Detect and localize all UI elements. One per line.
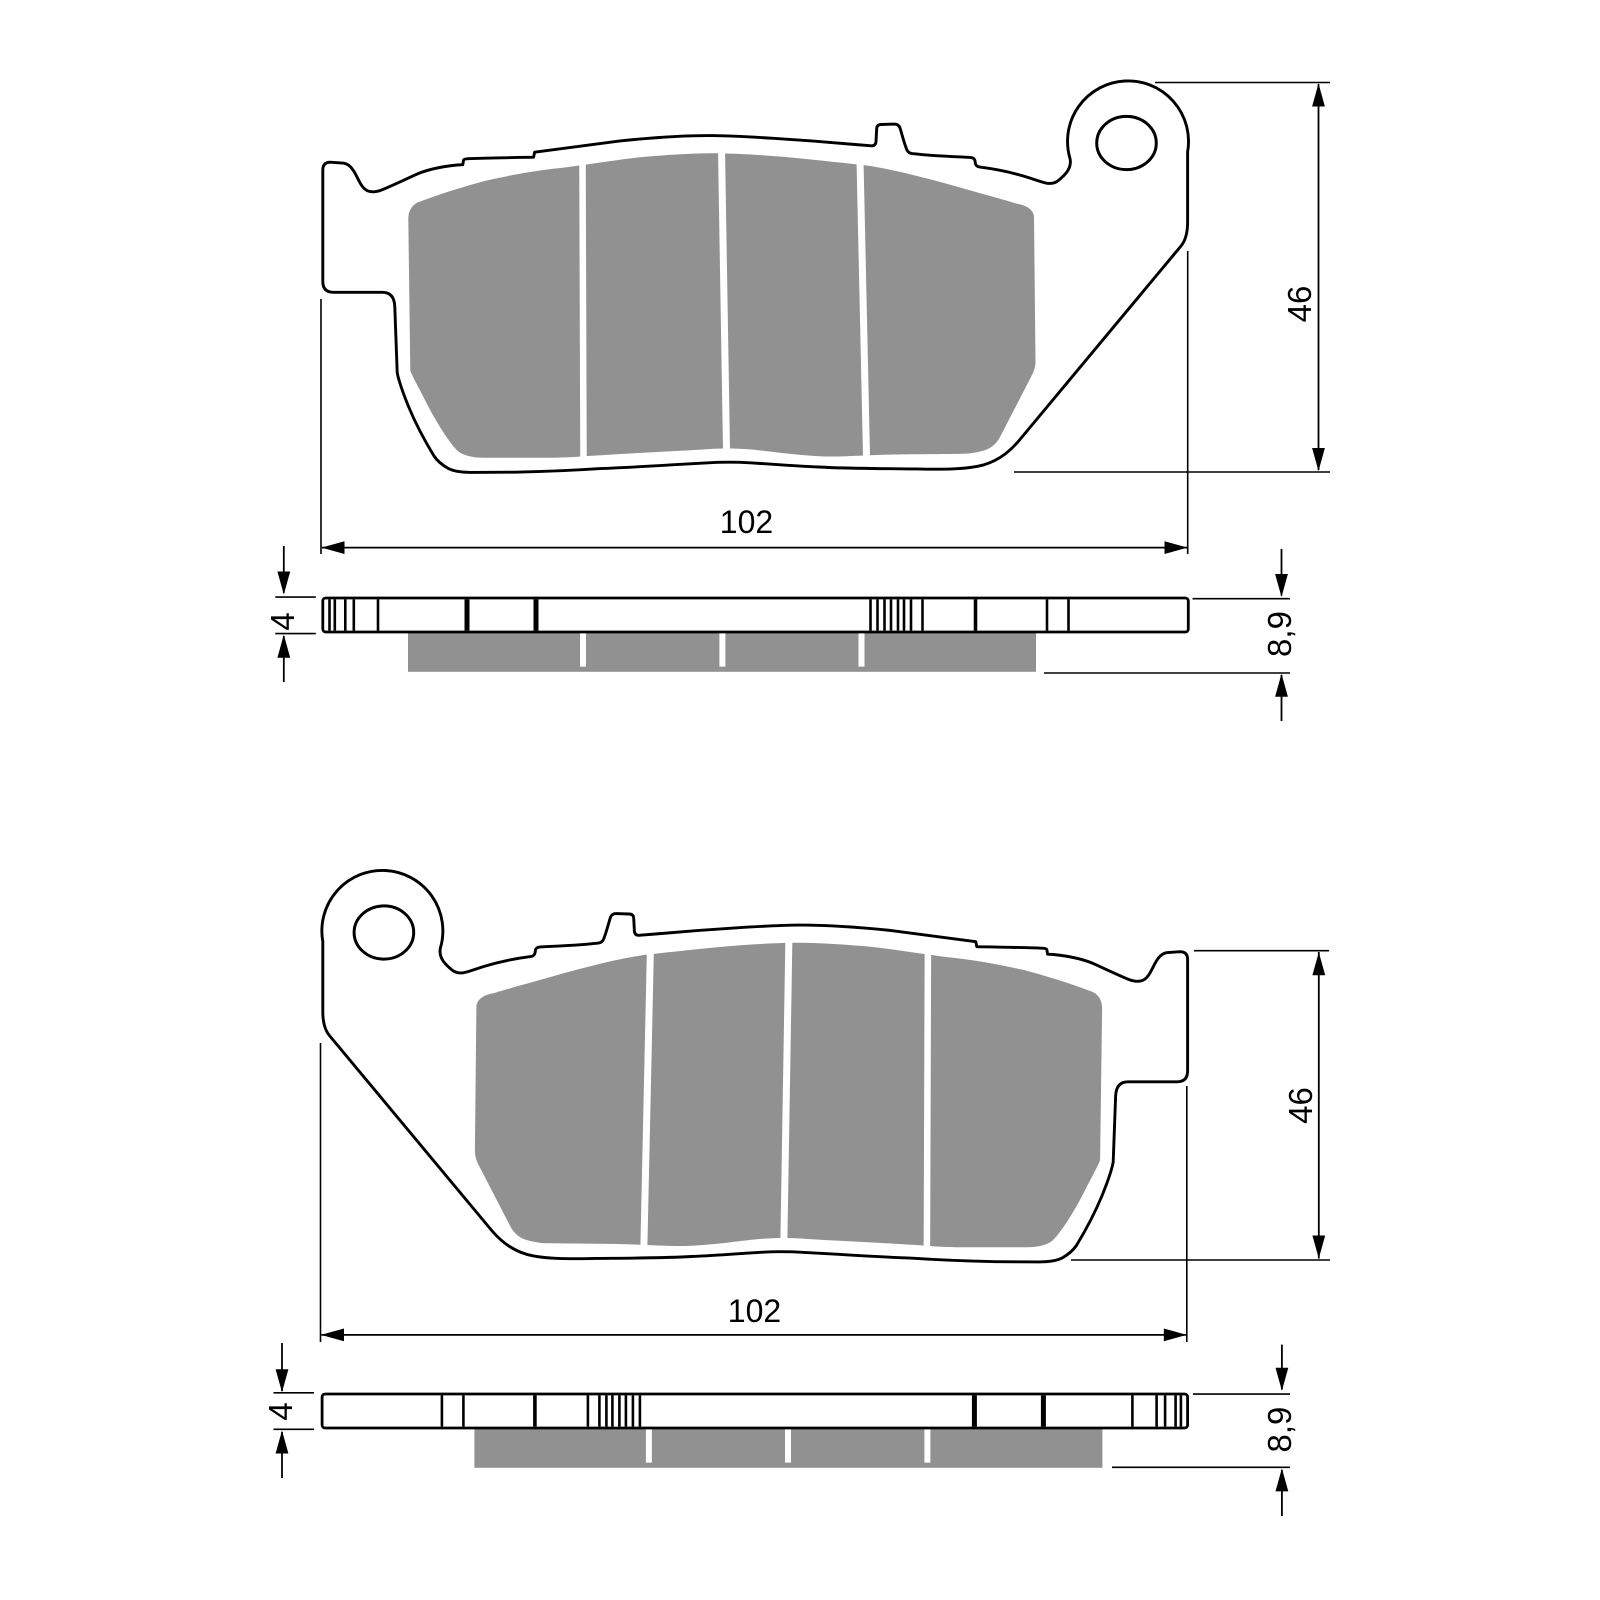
svg-text:8,9: 8,9 <box>1261 1407 1298 1453</box>
svg-text:8,9: 8,9 <box>1261 611 1298 657</box>
svg-text:4: 4 <box>262 1402 299 1420</box>
svg-text:4: 4 <box>264 612 301 630</box>
svg-text:46: 46 <box>1282 1087 1319 1124</box>
svg-text:46: 46 <box>1281 286 1318 323</box>
svg-text:102: 102 <box>720 504 773 540</box>
svg-text:102: 102 <box>728 1293 781 1329</box>
